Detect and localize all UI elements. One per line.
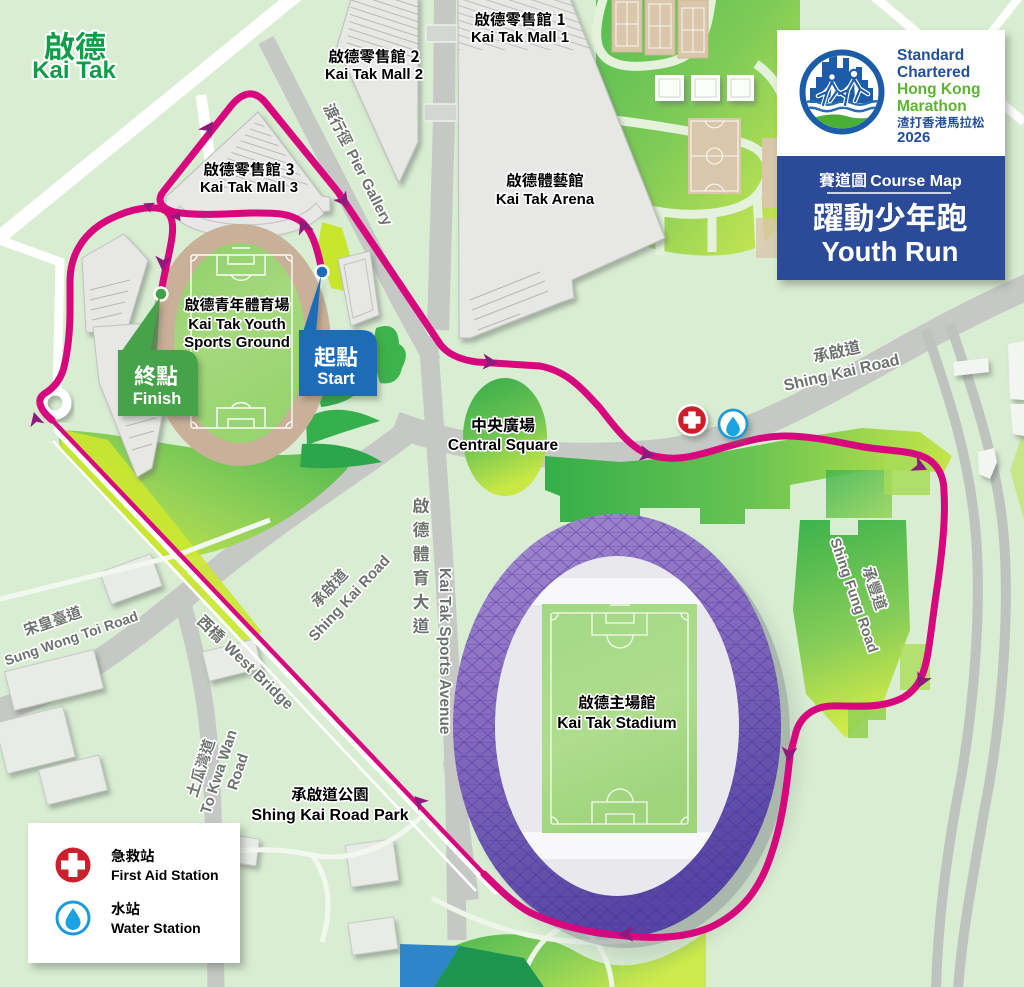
svg-text:2026: 2026	[897, 129, 930, 146]
svg-text:Start: Start	[317, 370, 355, 388]
svg-text:Kai Tak Mall 2: Kai Tak Mall 2	[325, 66, 423, 83]
svg-text:Kai Tak Youth: Kai Tak Youth	[188, 316, 286, 333]
svg-text:Hong Kong: Hong Kong	[897, 81, 981, 98]
svg-text:Sports Ground: Sports Ground	[184, 334, 290, 351]
svg-text:Standard: Standard	[897, 47, 964, 64]
svg-text:Kai Tak: Kai Tak	[32, 57, 116, 84]
svg-text:Kai Tak Sports Avenue: Kai Tak Sports Avenue	[436, 568, 453, 735]
svg-text:Kai Tak Mall 1: Kai Tak Mall 1	[471, 29, 569, 46]
svg-text:Chartered: Chartered	[897, 64, 970, 81]
svg-text:Finish: Finish	[133, 390, 182, 408]
svg-text:Youth Run: Youth Run	[822, 236, 959, 267]
svg-text:Kai Tak Mall 3: Kai Tak Mall 3	[200, 179, 298, 196]
svg-text:Shing Kai Road Park: Shing Kai Road Park	[251, 807, 408, 824]
svg-text:Marathon: Marathon	[897, 98, 967, 115]
svg-text:Kai Tak Stadium: Kai Tak Stadium	[557, 715, 676, 732]
svg-text:Central Square: Central Square	[448, 437, 559, 454]
svg-text:First Aid Station: First Aid Station	[111, 867, 219, 883]
svg-text:Water Station: Water Station	[111, 920, 201, 936]
svg-text:Course Map: Course Map	[870, 173, 962, 190]
svg-text:Kai Tak Arena: Kai Tak Arena	[496, 191, 595, 208]
